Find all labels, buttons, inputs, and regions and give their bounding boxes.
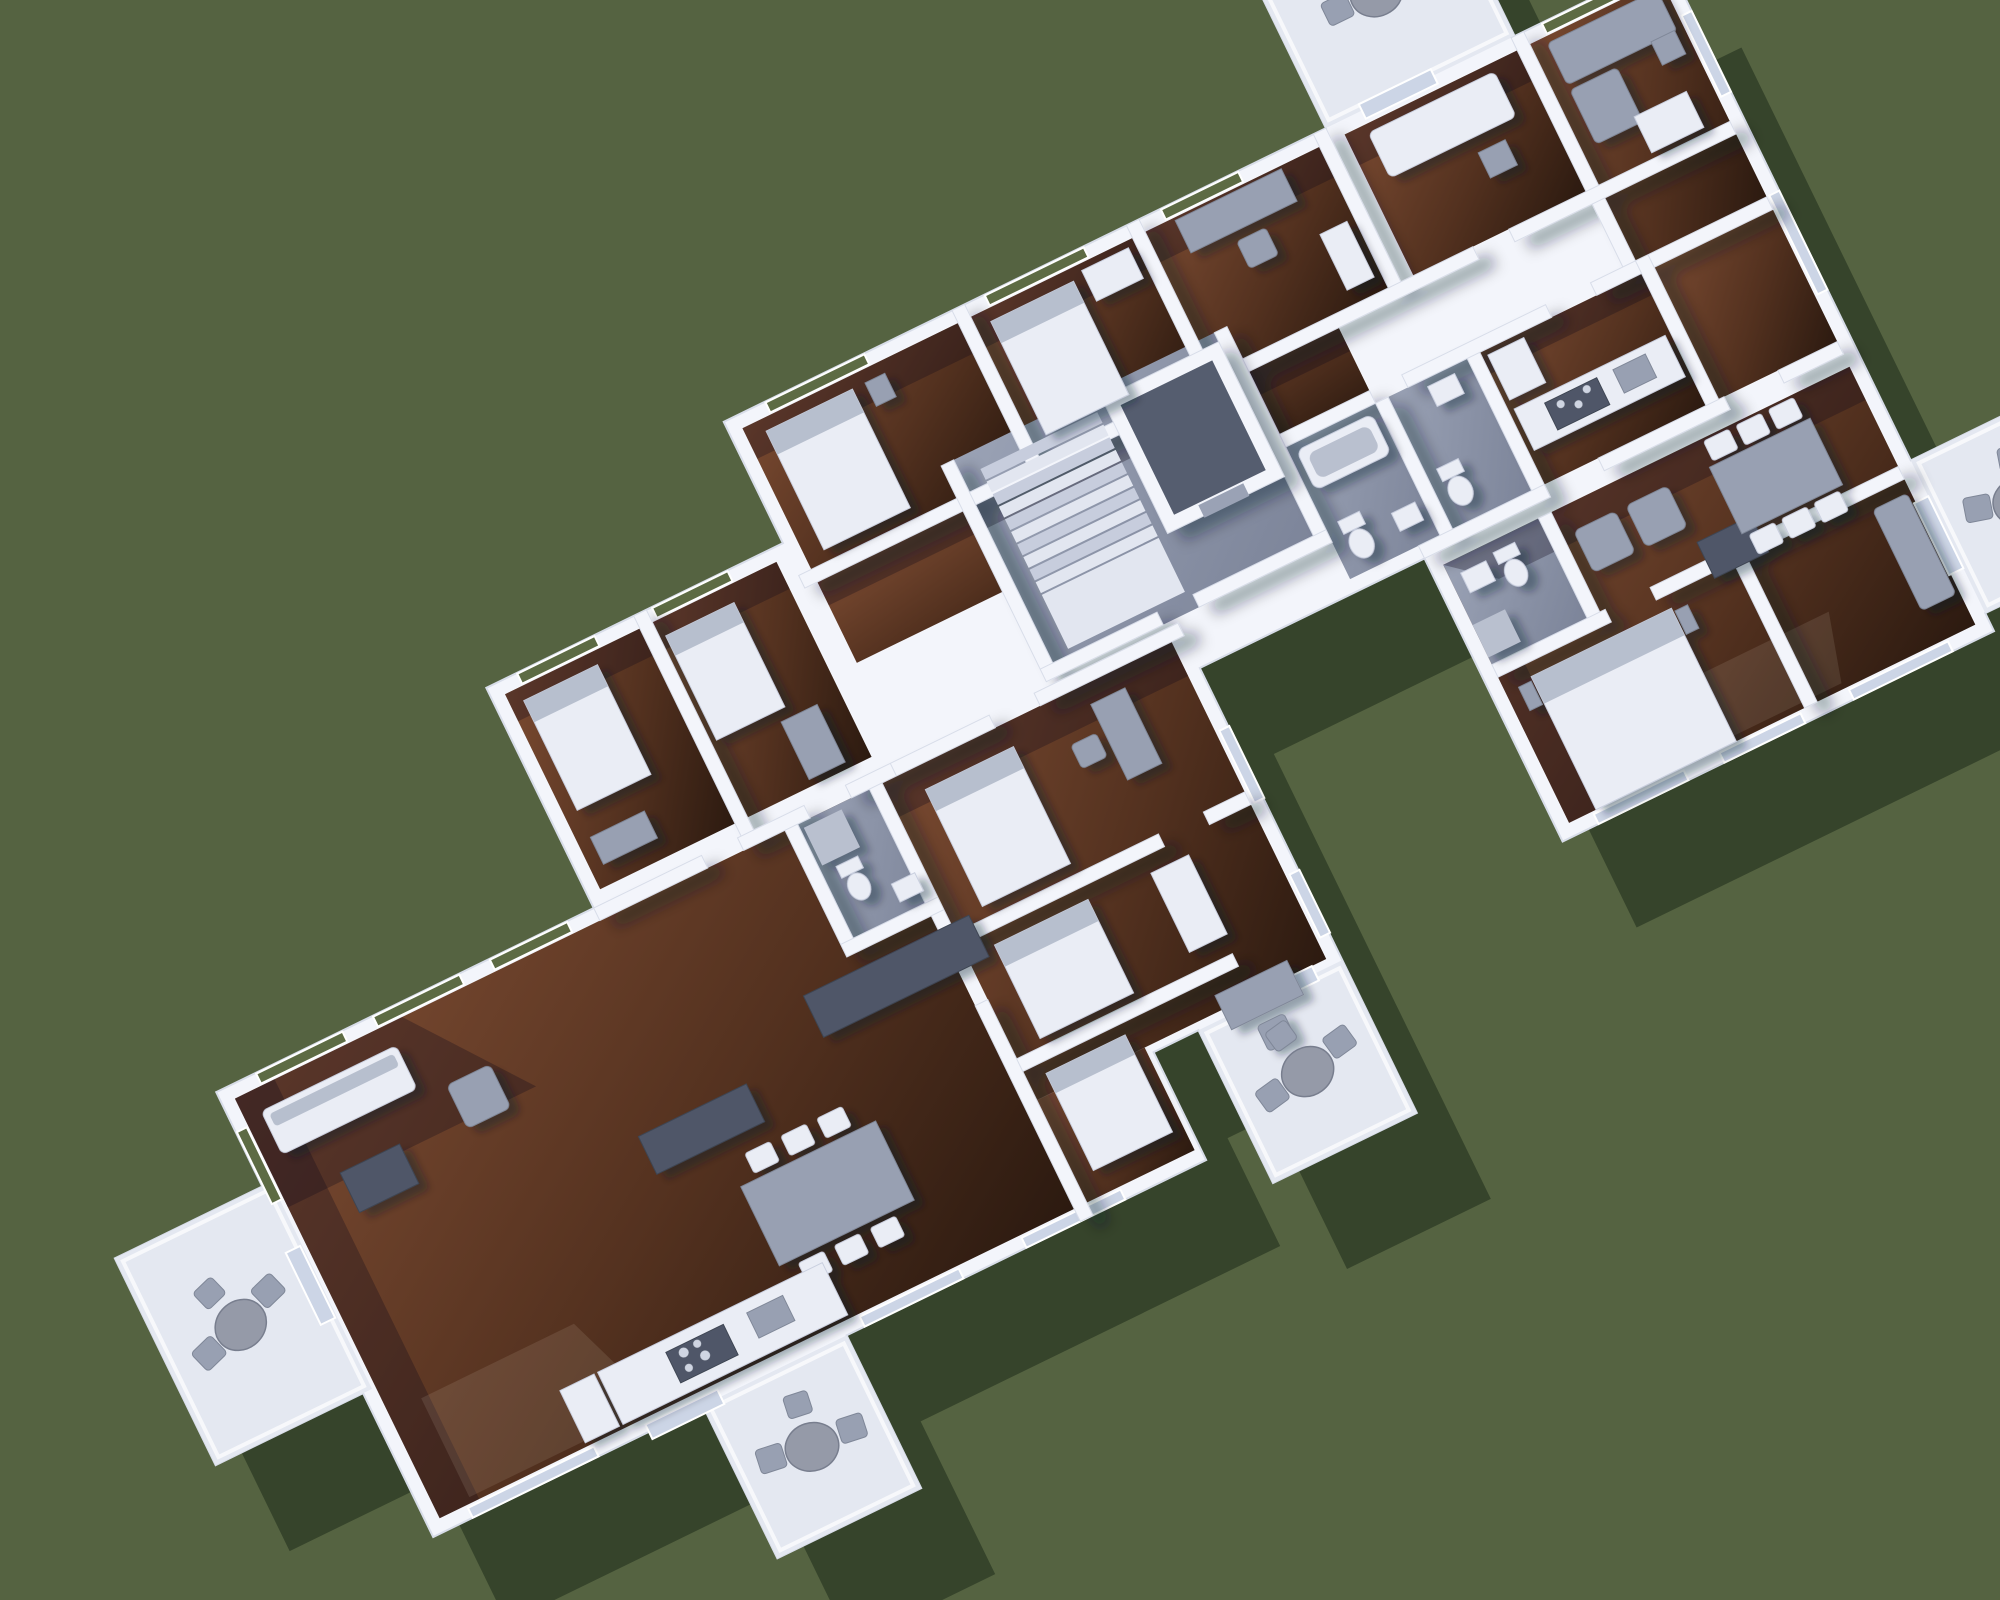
render-viewport: [0, 0, 2000, 1600]
floorplan-render: [0, 0, 2000, 1600]
